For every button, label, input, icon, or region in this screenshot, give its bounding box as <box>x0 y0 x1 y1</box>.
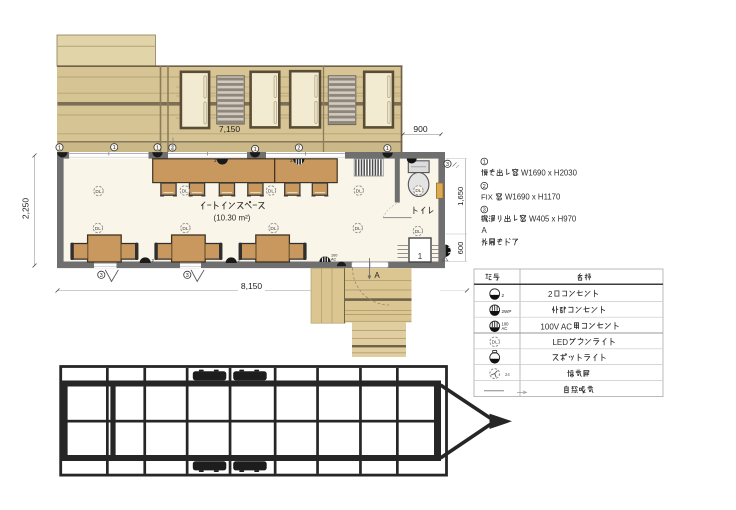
svg-text:8,150: 8,150 <box>241 281 263 291</box>
svg-text:1: 1 <box>58 145 61 151</box>
svg-text:100V AC: 100V AC <box>540 322 572 331</box>
svg-text:2: 2 <box>171 146 174 152</box>
svg-text:2: 2 <box>483 184 486 190</box>
svg-text:AC: AC <box>502 326 508 331</box>
svg-text:3: 3 <box>483 208 486 214</box>
svg-text:2: 2 <box>214 158 217 163</box>
svg-text:2: 2 <box>502 293 505 298</box>
svg-text:DL: DL <box>415 188 421 194</box>
svg-text:24: 24 <box>505 372 510 377</box>
svg-text:2: 2 <box>548 290 553 299</box>
svg-text:1: 1 <box>156 145 159 151</box>
svg-text:DL: DL <box>356 188 362 194</box>
svg-text:DL: DL <box>355 226 361 232</box>
svg-text:DL: DL <box>415 229 421 235</box>
svg-text:2,250: 2,250 <box>21 198 31 220</box>
svg-text:DL: DL <box>182 226 188 232</box>
svg-text:FIX: FIX <box>481 193 493 202</box>
svg-text:3: 3 <box>186 273 189 279</box>
svg-text:900: 900 <box>413 124 427 134</box>
svg-text:1,650: 1,650 <box>456 187 465 206</box>
svg-text:W1690 x H2030: W1690 x H2030 <box>521 168 578 177</box>
svg-text:DL: DL <box>270 226 276 232</box>
svg-text:600: 600 <box>456 242 465 255</box>
svg-text:LED: LED <box>552 338 568 347</box>
svg-text:3: 3 <box>100 273 103 279</box>
svg-text:DL: DL <box>268 188 274 194</box>
svg-text:2: 2 <box>297 146 300 152</box>
svg-text:2: 2 <box>290 158 293 163</box>
svg-text:1: 1 <box>386 146 389 152</box>
svg-text:DL: DL <box>182 188 188 194</box>
svg-text:2: 2 <box>238 258 241 263</box>
svg-text:1: 1 <box>418 252 423 261</box>
svg-text:DL: DL <box>492 340 498 346</box>
svg-text:DL: DL <box>95 189 101 195</box>
svg-text:W405 x H970: W405 x H970 <box>529 214 577 223</box>
svg-text:A: A <box>482 226 488 235</box>
svg-text:1: 1 <box>483 160 486 166</box>
svg-text:2WP: 2WP <box>502 309 512 314</box>
svg-text:(10.30 m²): (10.30 m²) <box>214 214 251 223</box>
svg-text:3: 3 <box>446 162 449 168</box>
svg-text:1: 1 <box>254 147 257 153</box>
svg-text:AC: AC <box>331 258 337 262</box>
svg-text:1: 1 <box>113 145 116 151</box>
svg-text:W1690 x H1170: W1690 x H1170 <box>505 193 561 202</box>
svg-text:7,150: 7,150 <box>219 124 241 134</box>
svg-text:A: A <box>374 271 380 280</box>
svg-text:2: 2 <box>152 258 155 263</box>
svg-text:DL: DL <box>95 226 101 232</box>
